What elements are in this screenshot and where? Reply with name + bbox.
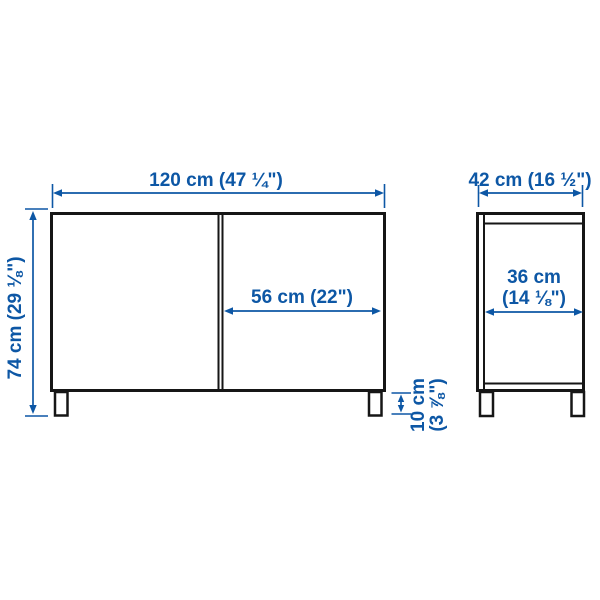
front-view xyxy=(52,213,385,416)
leg-height-label-line1: 10 cm xyxy=(408,378,429,432)
inner-depth-label-line1: 36 cm xyxy=(507,267,561,288)
arrowhead-up-icon xyxy=(398,395,404,403)
arrowhead-left-icon xyxy=(53,189,62,196)
dimension-overall-width: 120 cm (47 ¼") xyxy=(53,170,385,208)
dimension-depth: 42 cm (16 ½") xyxy=(468,170,591,207)
dimension-diagram: 120 cm (47 ¼") 74 cm (29 ⅛") 56 cm (22")… xyxy=(0,0,600,600)
side-back-leg xyxy=(572,392,585,416)
dimension-leg-height: 10 cm (3 ⅞") xyxy=(392,378,449,432)
side-front-leg xyxy=(480,392,493,416)
arrowhead-down-icon xyxy=(398,405,404,413)
overall-height-label: 74 cm (29 ⅛") xyxy=(5,256,26,379)
depth-label: 42 cm (16 ½") xyxy=(468,170,591,191)
front-right-leg xyxy=(369,392,382,416)
leg-height-label-line2: (3 ⅞") xyxy=(427,378,448,431)
dimension-overall-height: 74 cm (29 ⅛") xyxy=(5,209,48,416)
overall-width-label: 120 cm (47 ¼") xyxy=(149,170,283,191)
door-width-label: 56 cm (22") xyxy=(251,287,353,308)
arrowhead-down-icon xyxy=(29,405,36,414)
arrowhead-right-icon xyxy=(375,189,384,196)
inner-depth-label-line2: (14 ⅛") xyxy=(502,288,566,309)
arrowhead-up-icon xyxy=(29,211,36,220)
diagram-canvas: 120 cm (47 ¼") 74 cm (29 ⅛") 56 cm (22")… xyxy=(0,0,600,600)
front-left-leg xyxy=(55,392,68,416)
